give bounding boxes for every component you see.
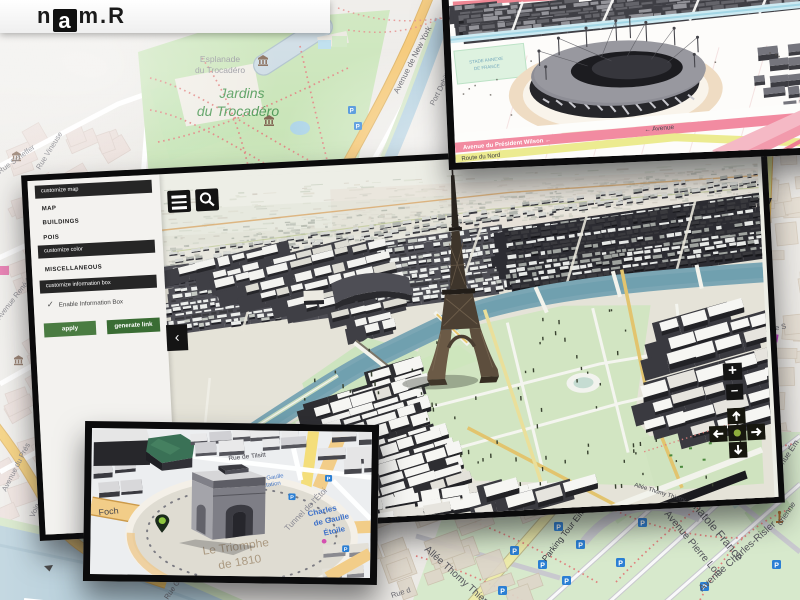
svg-text:du Trocadéro: du Trocadéro: [195, 65, 245, 75]
svg-text:P: P: [290, 495, 294, 501]
svg-text:Esplanade: Esplanade: [200, 54, 240, 64]
svg-text:P: P: [500, 588, 505, 595]
svg-text:P: P: [350, 109, 354, 115]
svg-text:Jardins: Jardins: [218, 85, 264, 101]
svg-text:P: P: [774, 562, 779, 569]
svg-text:P: P: [356, 125, 360, 131]
svg-text:P: P: [344, 547, 348, 553]
svg-text:Foch: Foch: [98, 506, 119, 518]
svg-text:du Trocadéro: du Trocadéro: [197, 103, 279, 119]
svg-text:P: P: [512, 548, 517, 555]
svg-text:P: P: [618, 560, 623, 567]
svg-text:P: P: [564, 578, 569, 585]
svg-text:P: P: [540, 562, 545, 569]
svg-text:P: P: [640, 520, 645, 527]
svg-text:P: P: [327, 477, 331, 483]
svg-text:P: P: [578, 542, 583, 549]
